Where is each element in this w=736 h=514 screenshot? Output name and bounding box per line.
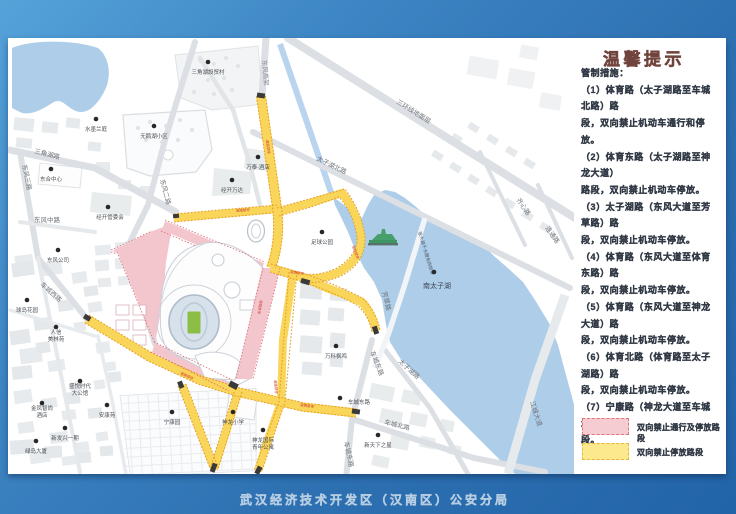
svg-text:新天下之星: 新天下之星 bbox=[364, 441, 392, 449]
svg-text:宁康园: 宁康园 bbox=[164, 418, 181, 426]
svg-text:青年公寓: 青年公寓 bbox=[252, 443, 275, 451]
svg-text:东风中路: 东风中路 bbox=[34, 215, 61, 224]
svg-text:万科枫鸣: 万科枫鸣 bbox=[325, 352, 348, 360]
svg-text:无鹅湖小区: 无鹅湖小区 bbox=[140, 132, 168, 140]
svg-text:足球公园: 足球公园 bbox=[311, 238, 334, 246]
svg-text:美林苑: 美林苑 bbox=[48, 335, 65, 343]
svg-text:道路禁停: 道路禁停 bbox=[236, 207, 251, 213]
svg-text:酒店: 酒店 bbox=[36, 411, 48, 419]
svg-text:水墨兰庭: 水墨兰庭 bbox=[85, 125, 108, 133]
svg-text:东合中心: 东合中心 bbox=[40, 175, 63, 183]
svg-text:车城东路: 车城东路 bbox=[348, 398, 371, 406]
svg-text:球岛花园: 球岛花园 bbox=[16, 306, 39, 314]
svg-text:绿岛大厦: 绿岛大厦 bbox=[25, 447, 48, 455]
svg-text:南太子湖: 南太子湖 bbox=[423, 281, 451, 290]
svg-text:盛悦时代: 盛悦时代 bbox=[69, 382, 92, 390]
svg-text:安康苑: 安康苑 bbox=[99, 411, 116, 419]
svg-text:经开万达: 经开万达 bbox=[221, 186, 244, 194]
svg-text:新发兴一期: 新发兴一期 bbox=[51, 434, 79, 442]
svg-text:三角湖設贸村: 三角湖設贸村 bbox=[191, 68, 225, 76]
svg-text:金凤智尚: 金凤智尚 bbox=[31, 404, 53, 412]
svg-text:神龙国际: 神龙国际 bbox=[252, 436, 275, 444]
svg-text:万泰·酒店: 万泰·酒店 bbox=[246, 163, 270, 171]
svg-text:经开管委会: 经开管委会 bbox=[96, 213, 124, 221]
svg-text:人信: 人信 bbox=[50, 328, 62, 336]
svg-text:神龙小学: 神龙小学 bbox=[222, 418, 245, 426]
svg-text:大公馆: 大公馆 bbox=[72, 389, 89, 397]
svg-text:东风公司: 东风公司 bbox=[47, 256, 69, 264]
